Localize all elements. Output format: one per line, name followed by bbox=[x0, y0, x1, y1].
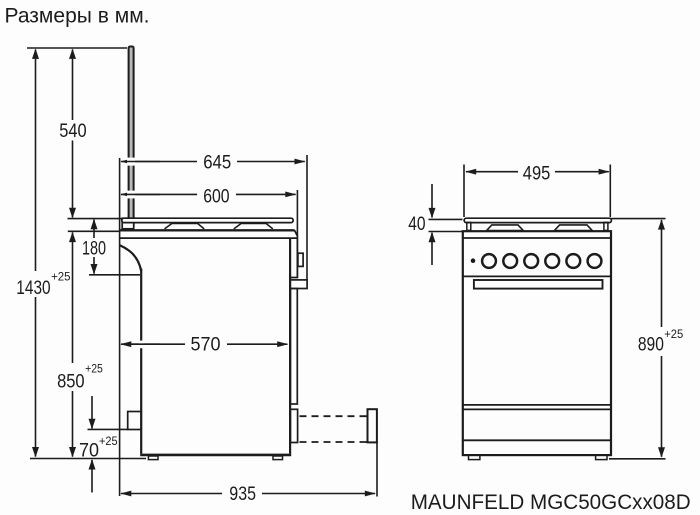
svg-text:40: 40 bbox=[408, 214, 425, 235]
svg-text:180: 180 bbox=[82, 238, 106, 259]
svg-text:600: 600 bbox=[203, 187, 229, 208]
svg-text:540: 540 bbox=[59, 121, 86, 142]
svg-text:1430: 1430 bbox=[16, 278, 50, 299]
svg-text:+25: +25 bbox=[51, 272, 70, 284]
svg-text:570: 570 bbox=[191, 335, 221, 356]
svg-text:850: 850 bbox=[57, 372, 85, 393]
svg-text:495: 495 bbox=[523, 163, 551, 184]
svg-text:+25: +25 bbox=[85, 364, 103, 376]
svg-text:645: 645 bbox=[203, 153, 231, 174]
svg-text:+25: +25 bbox=[664, 329, 683, 341]
svg-text:MAUNFELD MGC50GCxx08D: MAUNFELD MGC50GCxx08D bbox=[411, 491, 691, 514]
svg-text:935: 935 bbox=[229, 484, 256, 505]
svg-text:+25: +25 bbox=[99, 436, 118, 448]
svg-text:890: 890 bbox=[638, 334, 664, 355]
svg-text:Размеры в мм.: Размеры в мм. bbox=[5, 3, 150, 27]
